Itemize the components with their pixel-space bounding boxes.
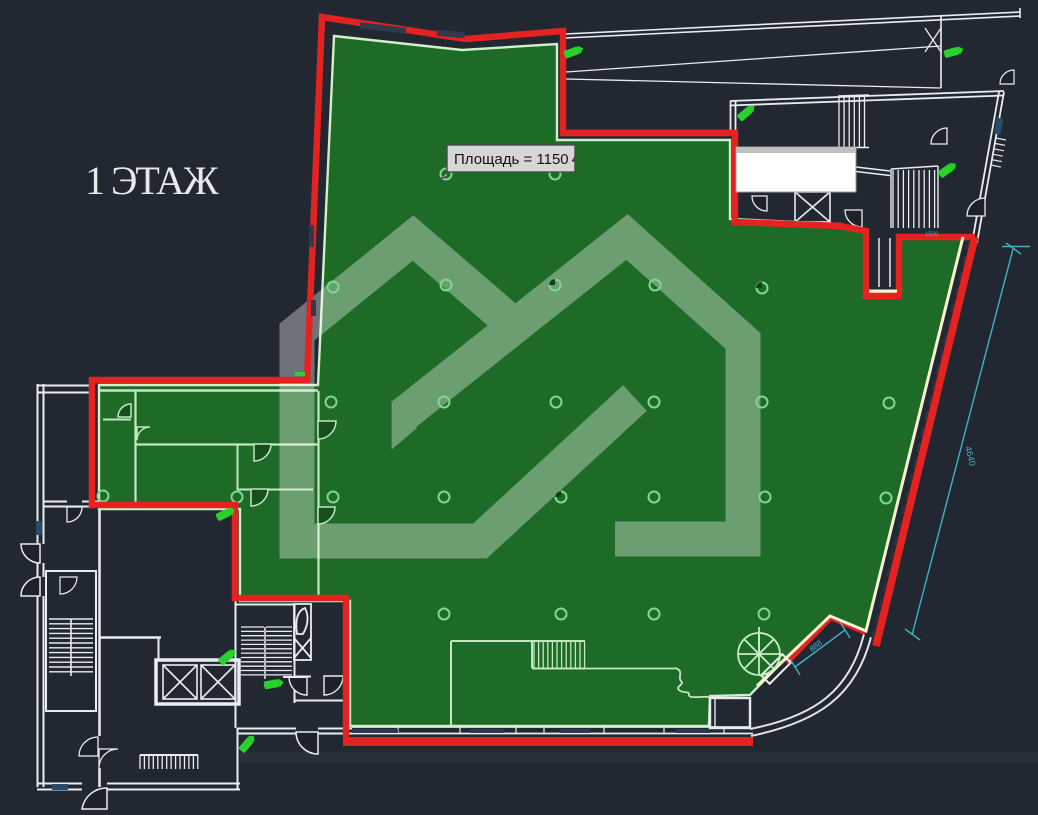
svg-text:1500: 1500 <box>925 232 939 238</box>
svg-text:1 ЭТАЖ: 1 ЭТАЖ <box>85 158 219 203</box>
svg-text:Площадь = 1150 4: Площадь = 1150 4 <box>454 151 580 168</box>
